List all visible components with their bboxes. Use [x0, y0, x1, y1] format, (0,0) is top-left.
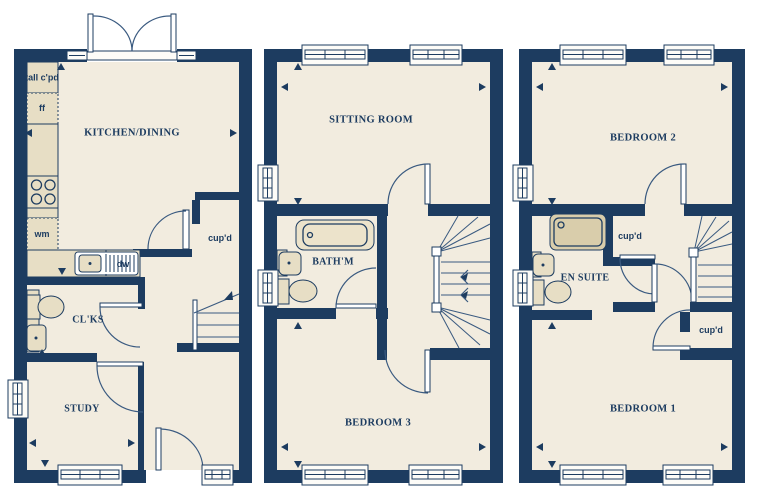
- fixture-label-fridge-freezer: ff: [39, 103, 45, 113]
- bath-tub: [296, 220, 374, 250]
- room-label-kitchen-dining: KITCHEN/DINING: [84, 128, 180, 139]
- window: [67, 51, 87, 60]
- french-doors: [87, 14, 177, 62]
- shower-tray: [550, 214, 606, 250]
- window: [258, 270, 278, 306]
- toilet: [27, 295, 64, 319]
- window: [410, 45, 462, 65]
- window: [513, 270, 533, 306]
- room-label-sitting-room: SITTING ROOM: [329, 115, 413, 126]
- hob: [27, 176, 58, 208]
- room-label-cloakroom: CL'KS: [72, 315, 104, 326]
- window: [302, 465, 368, 485]
- second-floor-plan: [513, 45, 745, 485]
- room-label-ensuite: EN SUITE: [561, 273, 610, 284]
- room-label-bathroom: BATH'M: [312, 257, 354, 268]
- room-label-cupboard-top: cup'd: [618, 231, 642, 241]
- window: [663, 465, 713, 485]
- room-label-study: STUDY: [64, 404, 99, 415]
- window: [177, 51, 196, 60]
- window: [258, 165, 278, 201]
- ground-floor-plan: [8, 14, 252, 485]
- window: [202, 465, 233, 485]
- window: [560, 45, 626, 65]
- basin: [532, 252, 554, 277]
- window: [409, 465, 462, 485]
- fixture-label-dishwasher: dw: [117, 259, 130, 269]
- fixture-label-tall-cupboard: tall c'pd: [25, 73, 59, 82]
- toilet: [532, 280, 571, 305]
- room-label-bedroom3: BEDROOM 3: [345, 418, 411, 429]
- fixture-label-washing-machine: wm: [34, 229, 49, 239]
- room-label-bedroom1: BEDROOM 1: [610, 404, 676, 415]
- basin: [277, 250, 301, 276]
- room-label-bedroom2: BEDROOM 2: [610, 133, 676, 144]
- window: [58, 465, 122, 485]
- window: [8, 380, 28, 418]
- room-label-cupboard-bottom: cup'd: [699, 325, 723, 335]
- window: [302, 45, 368, 65]
- room-label-cupboard-ground: cup'd: [208, 233, 232, 243]
- window: [560, 465, 626, 485]
- floorplan-sheet: KITCHEN/DINING tall c'pd ff wm dw cup'd …: [0, 0, 769, 495]
- basin: [27, 325, 46, 351]
- window: [513, 165, 533, 201]
- window: [664, 45, 714, 65]
- toilet: [277, 279, 317, 304]
